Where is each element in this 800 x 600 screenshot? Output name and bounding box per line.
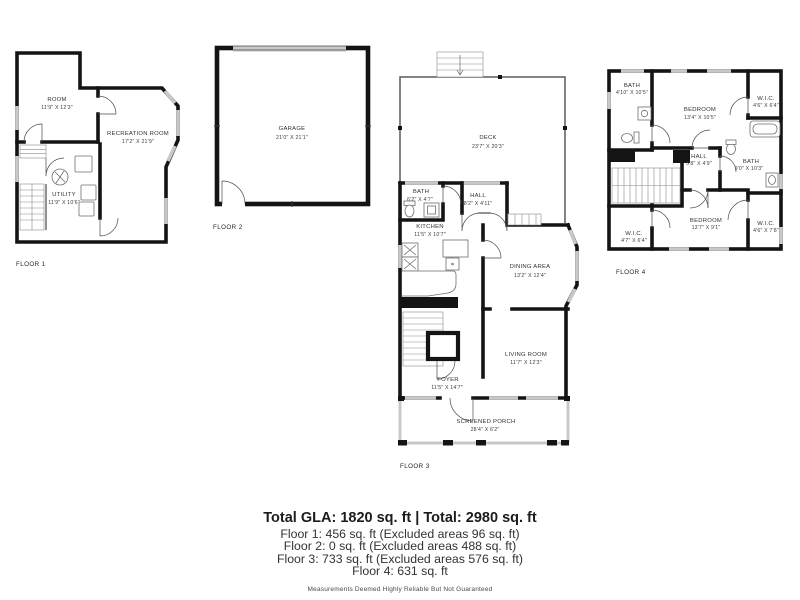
room-dims: 13'4" X 10'5" xyxy=(684,115,716,121)
room-dims: 11'5" X 14'7" xyxy=(431,385,463,391)
room-name: GARAGE xyxy=(279,126,306,132)
total-gla-line: Total GLA: 1820 sq. ft | Total: 2980 sq.… xyxy=(0,510,800,526)
room-dims: 4'6" X 7'8" xyxy=(753,228,779,234)
room-dims: 9'0" X 10'3" xyxy=(735,166,764,172)
kitchen-fixtures xyxy=(402,240,468,296)
room-name: LIVING ROOM xyxy=(505,352,547,358)
room-name: DINING AREA xyxy=(510,264,551,270)
room-dims: 23'7" X 20'3" xyxy=(472,144,504,150)
room-dims: 6'2" X 4'7" xyxy=(407,197,433,203)
room-name: BEDROOM xyxy=(690,218,722,224)
room-dims: 4'10" X 10'5" xyxy=(616,90,648,96)
room-dims: 5'8" X 4'9" xyxy=(686,161,712,167)
floorplan-page: ROOM 11'9" X 12'3" RECREATION ROOM 17'2"… xyxy=(0,0,800,600)
room-name: UTILITY xyxy=(52,192,76,198)
floor1-stairs xyxy=(20,184,44,230)
floor-label: FLOOR 3 xyxy=(400,463,430,470)
floor1-hatch xyxy=(20,145,46,158)
floor-2-area-line: Floor 2: 0 sq. ft (Excluded areas 488 sq… xyxy=(0,540,800,552)
room-name: BATH xyxy=(413,189,429,195)
room-dims: 13'2" X 12'4" xyxy=(514,273,546,279)
room-name: BATH xyxy=(743,159,759,165)
floor-4-plan: BATH 4'10" X 10'5" BEDROOM 13'4" X 10'5"… xyxy=(609,71,781,276)
floor-4-area-line: Floor 4: 631 sq. ft xyxy=(0,565,800,577)
floor4-stairs xyxy=(612,168,680,203)
room-name: RECREATION ROOM xyxy=(107,131,169,137)
room-dims: 4'7" X 6'4" xyxy=(621,238,647,244)
room-name: W.I.C. xyxy=(757,96,775,102)
room-name: HALL xyxy=(470,193,486,199)
deck-stairs xyxy=(437,52,483,77)
floor-label: FLOOR 2 xyxy=(213,224,243,231)
room-name: HALL xyxy=(691,154,707,160)
room-name: W.I.C. xyxy=(625,231,643,237)
room-dims: 17'2" X 21'9" xyxy=(122,139,154,145)
room-name: W.I.C. xyxy=(757,221,775,227)
room-name: SCREENED PORCH xyxy=(456,419,515,425)
room-dims: 11'9" X 10'6" xyxy=(48,200,80,206)
floor-2-plan: GARAGE 21'0" X 21'1" FLOOR 2 xyxy=(213,48,371,231)
room-name: BATH xyxy=(624,83,640,89)
room-name: ROOM xyxy=(47,97,66,103)
room-name: BEDROOM xyxy=(684,107,716,113)
room-dims: 8'2" X 4'11" xyxy=(464,201,492,207)
floor-1-plan: ROOM 11'9" X 12'3" RECREATION ROOM 17'2"… xyxy=(16,53,178,268)
floor-3-plan: DECK 23'7" X 20'3" BATH 6'2" X 4'7" HALL… xyxy=(398,52,577,470)
floor-label: FLOOR 1 xyxy=(16,261,46,268)
disclaimer-text: Measurements Deemed Highly Reliable But … xyxy=(0,586,800,593)
room-dims: 13'7" X 9'1" xyxy=(692,225,721,231)
room-name: FOYER xyxy=(437,377,459,383)
room-dims: 4'6" X 6'4" xyxy=(753,103,779,109)
room-dims: 28'4" X 6'2" xyxy=(471,427,500,433)
room-name: KITCHEN xyxy=(416,224,444,230)
bath-fixtures xyxy=(404,201,439,217)
area-summary: Total GLA: 1820 sq. ft | Total: 2980 sq.… xyxy=(0,510,800,593)
room-dims: 11'7" X 12'3" xyxy=(510,360,542,366)
floor-label: FLOOR 4 xyxy=(616,269,646,276)
room-dims: 11'5" X 10'7" xyxy=(414,232,446,238)
room-dims: 11'9" X 12'3" xyxy=(41,105,73,111)
deck-step-hatch xyxy=(508,214,541,225)
room-name: DECK xyxy=(479,135,496,141)
room-dims: 21'0" X 21'1" xyxy=(276,135,308,141)
